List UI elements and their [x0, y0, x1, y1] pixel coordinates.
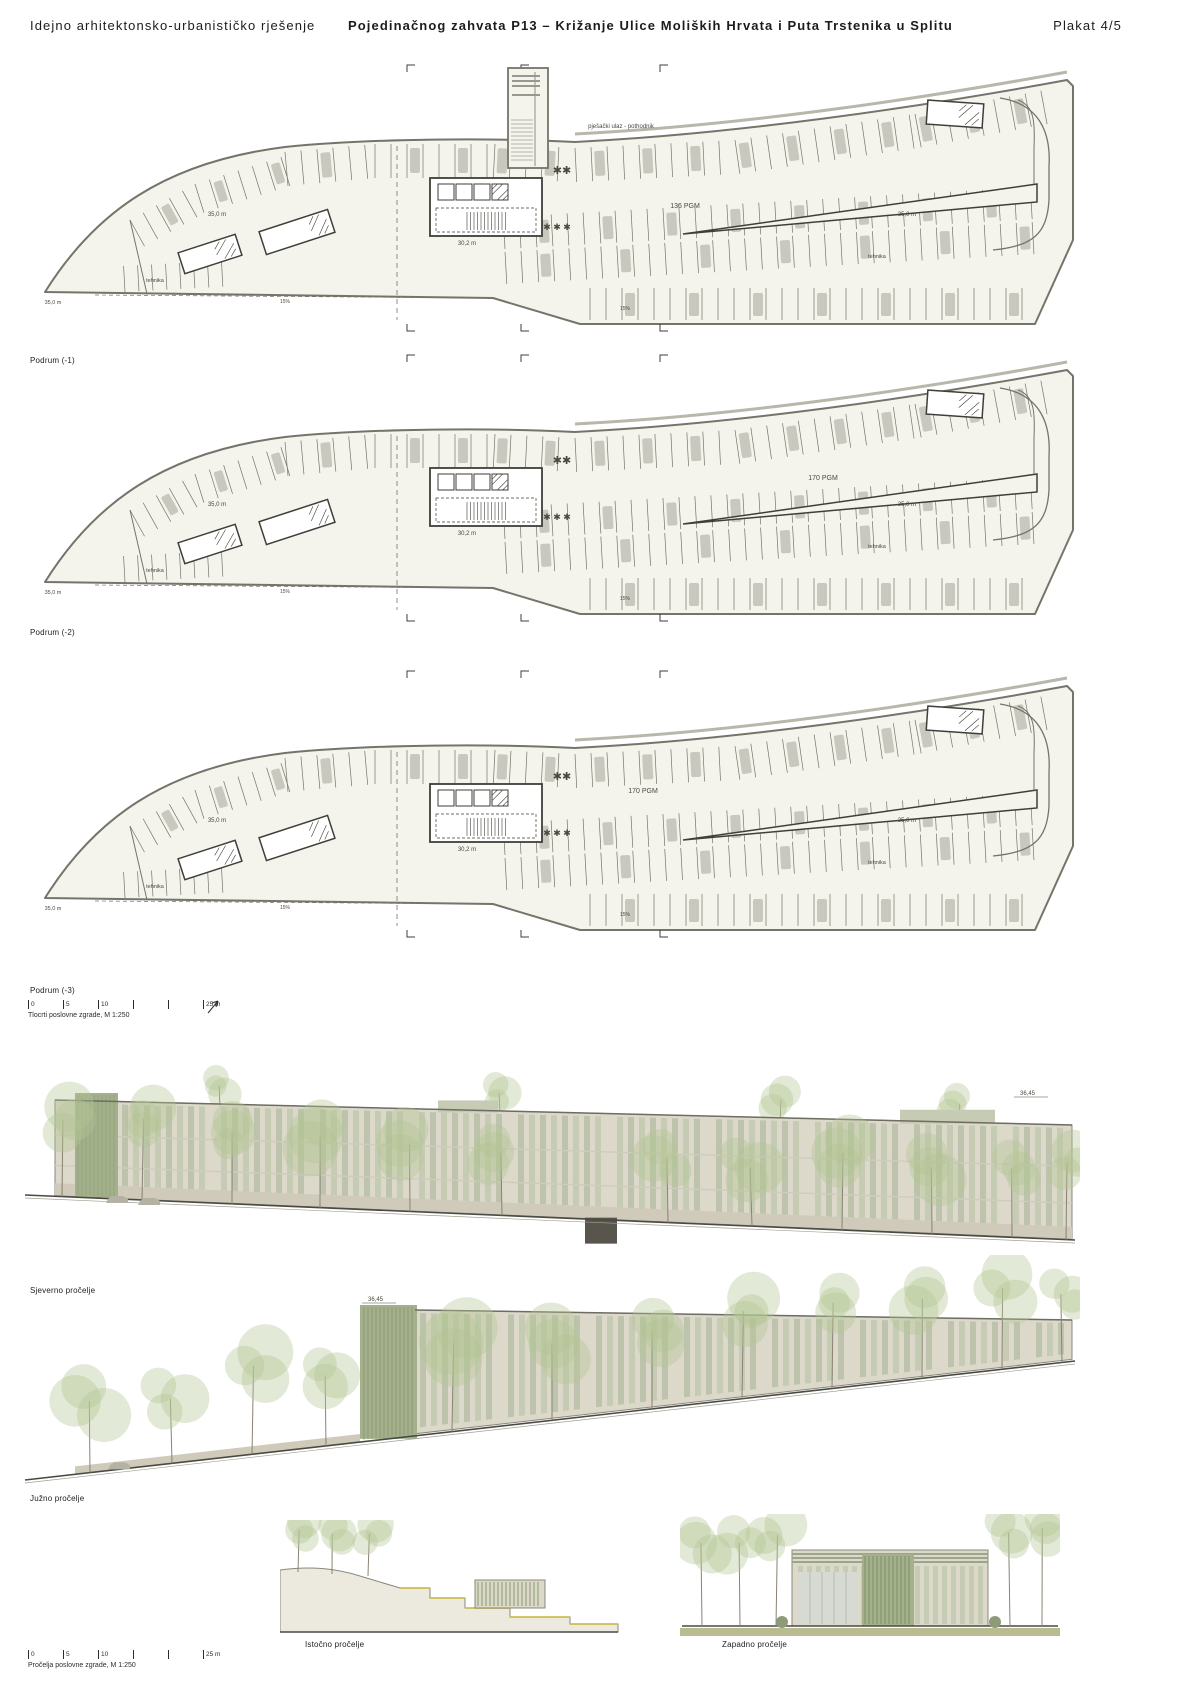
floor-plan-basement-3: 35,0 m35,0 m30,2 m35,0 mtehnikatehnika15… — [35, 668, 1075, 940]
east-elevation-art — [280, 1520, 618, 1632]
north-elevation-drawing: 36,45 — [20, 1055, 1080, 1255]
entrance-annotation: pješački ulaz - pothodnik — [588, 124, 655, 130]
dimension-label: 35,0 m — [208, 212, 226, 218]
main-core — [430, 468, 542, 526]
vent-symbols: ✱ ✱ ✱ — [543, 828, 571, 838]
east-elevation-drawing — [280, 1520, 620, 1635]
poster-page: Idejno arhitektonsko-urbanističko rješen… — [0, 0, 1200, 1696]
header: Idejno arhitektonsko-urbanističko rješen… — [0, 18, 1200, 40]
vent-symbols: ✱✱ — [553, 455, 571, 467]
dimension-label: 35,0 m — [45, 906, 62, 912]
header-left-title: Idejno arhitektonsko-urbanističko rješen… — [30, 18, 315, 33]
plan-3-label: Podrum (-3) — [30, 986, 75, 995]
dimension-label: 35,0 m — [898, 502, 916, 508]
glazed-band — [798, 1572, 858, 1624]
vent-symbols: ✱ ✱ ✱ — [543, 512, 571, 522]
header-right-title: Plakat 4/5 — [1053, 18, 1122, 33]
street-strip — [680, 1628, 1060, 1636]
tech-room-label: tehnika — [146, 278, 165, 284]
parking-capacity-label: 136 PGM — [670, 203, 700, 210]
plan-art: pješački ulaz - pothodnik35,0 m35,0 m30,… — [45, 65, 1073, 331]
north-arrow-icon — [205, 998, 223, 1016]
east-elevation-label: Istočno pročelje — [305, 1640, 364, 1649]
scale-tick-5: 5 — [66, 1651, 70, 1658]
tech-room-label: tehnika — [146, 884, 165, 890]
header-center-title: Pojedinačnog zahvata P13 – Križanje Ulic… — [348, 18, 953, 33]
pedestrian-underpass-shaft — [508, 68, 548, 168]
dimension-label: 35,0 m — [45, 590, 62, 596]
dimension-label: 35,0 m — [208, 502, 226, 508]
slope-label: 15% — [620, 912, 631, 918]
scale-tick-25: 25 m — [206, 1651, 220, 1658]
tech-room-label: tehnika — [868, 254, 887, 260]
level-mark-label: 36,45 — [368, 1297, 384, 1303]
parking-capacity-label: 170 PGM — [808, 475, 838, 482]
west-elevation-art — [680, 1514, 1060, 1636]
level-mark-label: 36,45 — [1020, 1091, 1036, 1097]
north-elevation-label: Sjeverno pročelje — [30, 1286, 95, 1295]
slope-label: 15% — [280, 905, 291, 911]
bush — [776, 1616, 788, 1628]
dimension-label: 35,0 m — [208, 818, 226, 824]
vent-symbols: ✱✱ — [553, 165, 571, 177]
main-core — [430, 784, 542, 842]
tech-room-label: tehnika — [868, 860, 887, 866]
scale-tick-10: 10 — [101, 1651, 108, 1658]
south-elevation-drawing: 36,45 — [20, 1255, 1080, 1487]
vent-symbols: ✱✱ — [553, 771, 571, 783]
dimension-label: 30,2 m — [458, 241, 476, 247]
floor-plan-basement-1: pješački ulaz - pothodnik35,0 m35,0 m30,… — [35, 62, 1075, 334]
tech-room-label: tehnika — [146, 568, 165, 574]
tech-room-label: tehnika — [868, 544, 887, 550]
scale-tick-0: 0 — [31, 1001, 35, 1008]
dimension-label: 35,0 m — [898, 212, 916, 218]
slope-label: 15% — [280, 589, 291, 595]
hill-trees — [285, 1520, 394, 1576]
plan-1-label: Podrum (-1) — [30, 356, 75, 365]
elevations-scale-caption: Pročelja poslovne zgrade, M 1:250 — [28, 1662, 238, 1669]
bush — [989, 1616, 1001, 1628]
dimension-label: 35,0 m — [45, 300, 62, 306]
scale-tick-5: 5 — [66, 1001, 70, 1008]
vent-symbols: ✱ ✱ ✱ — [543, 222, 571, 232]
dimension-label: 30,2 m — [458, 847, 476, 853]
terrain-section — [280, 1568, 618, 1632]
north-elevation-art — [25, 1065, 1080, 1244]
elevations-scale-bar: 0 5 10 25 m Pročelja poslovne zgrade, M … — [28, 1650, 238, 1669]
plan-2-label: Podrum (-2) — [30, 628, 75, 637]
slat-core — [862, 1554, 914, 1626]
parking-capacity-label: 170 PGM — [628, 788, 658, 795]
west-elevation-drawing — [680, 1514, 1060, 1644]
scale-tick-10: 10 — [101, 1001, 108, 1008]
floor-plan-basement-2: 35,0 m35,0 m30,2 m35,0 mtehnikatehnika15… — [35, 352, 1075, 624]
plan-art: 35,0 m35,0 m30,2 m35,0 mtehnikatehnika15… — [45, 355, 1073, 621]
slope-label: 15% — [280, 299, 291, 305]
slope-label: 15% — [620, 596, 631, 602]
scale-tick-0: 0 — [31, 1651, 35, 1658]
dimension-label: 35,0 m — [898, 818, 916, 824]
main-core — [430, 178, 542, 236]
south-elevation-label: Južno pročelje — [30, 1494, 84, 1503]
south-elevation-art — [25, 1255, 1080, 1483]
dimension-label: 30,2 m — [458, 531, 476, 537]
underpass-entry — [585, 1218, 617, 1244]
plan-art: 35,0 m35,0 m30,2 m35,0 mtehnikatehnika15… — [45, 671, 1073, 937]
slope-label: 15% — [620, 306, 631, 312]
west-elevation-label: Zapadno pročelje — [722, 1640, 787, 1649]
scale-bar-ticks: 0 5 10 25 m — [28, 1650, 238, 1661]
